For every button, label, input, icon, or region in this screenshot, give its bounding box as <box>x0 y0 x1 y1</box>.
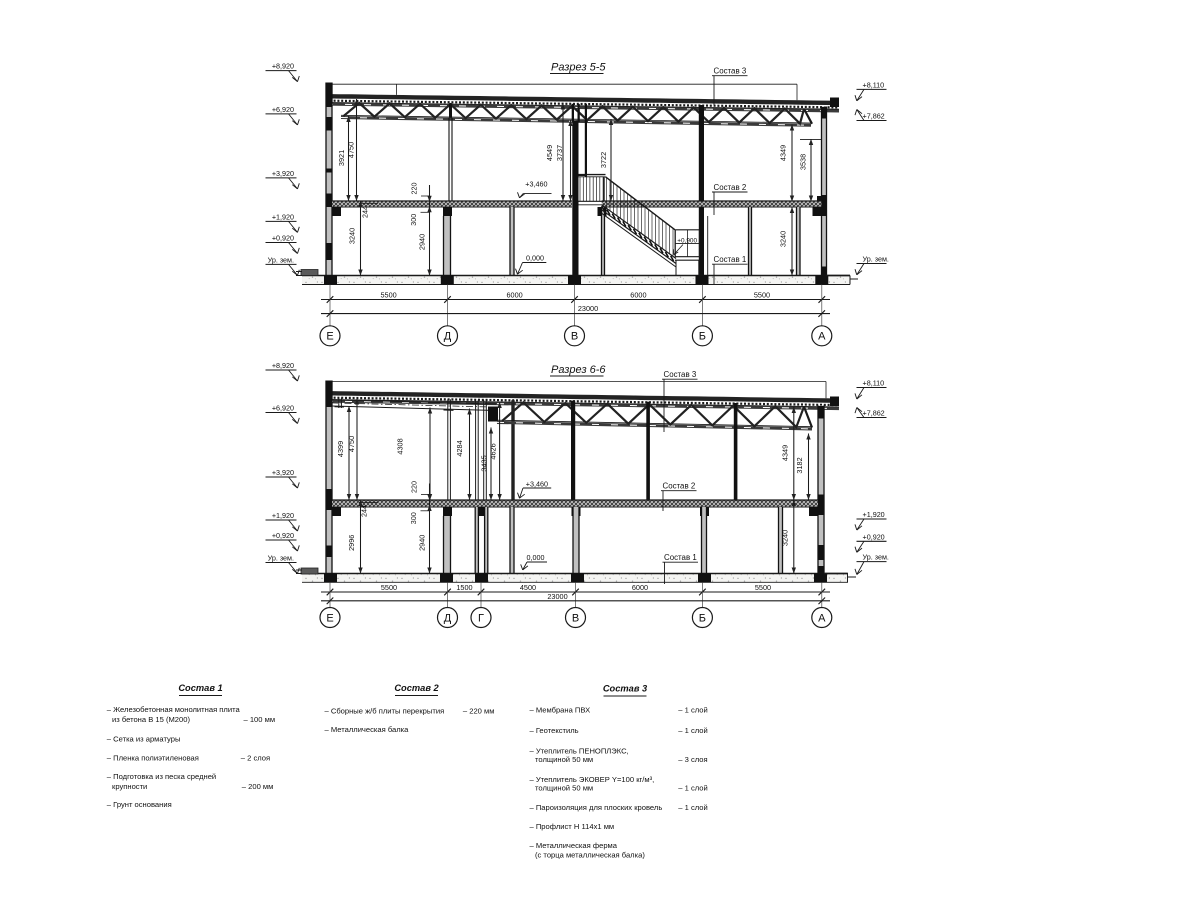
svg-text:Состав 2: Состав 2 <box>714 183 747 192</box>
svg-text:толщиной 50 мм: толщиной 50 мм <box>535 755 593 764</box>
svg-text:Ур. зем.: Ур. зем. <box>268 255 294 264</box>
svg-text:+8,110: +8,110 <box>863 80 885 89</box>
svg-text:4750: 4750 <box>347 436 356 452</box>
svg-text:В: В <box>572 612 579 624</box>
svg-text:3240: 3240 <box>780 530 789 546</box>
svg-text:+0,920: +0,920 <box>272 234 294 243</box>
svg-text:+1,920: +1,920 <box>863 510 885 519</box>
svg-text:3921: 3921 <box>337 150 346 166</box>
svg-text:4284: 4284 <box>455 440 464 456</box>
svg-text:+3,460: +3,460 <box>525 179 547 188</box>
svg-text:Ур. зем.: Ур. зем. <box>268 554 294 563</box>
svg-text:3737: 3737 <box>555 145 564 161</box>
svg-text:– 200 мм: – 200 мм <box>242 782 274 791</box>
svg-text:Разрез 5-5: Разрез 5-5 <box>551 62 606 74</box>
svg-text:– 1 слой: – 1 слой <box>678 706 707 715</box>
svg-text:толщиной 50 мм: толщиной 50 мм <box>535 783 593 792</box>
svg-text:1500: 1500 <box>456 583 472 592</box>
svg-text:+1,920: +1,920 <box>272 511 294 520</box>
svg-text:+3,920: +3,920 <box>272 169 294 178</box>
svg-text:+8,920: +8,920 <box>272 62 294 71</box>
svg-text:4349: 4349 <box>780 445 789 461</box>
svg-text:– 1 слой: – 1 слой <box>678 726 707 735</box>
svg-text:23000: 23000 <box>547 592 567 601</box>
svg-text:Разрез 6-6: Разрез 6-6 <box>551 364 606 376</box>
svg-text:– Геотекстиль: – Геотекстиль <box>530 726 579 735</box>
svg-text:4500: 4500 <box>520 583 536 592</box>
svg-text:крупности: крупности <box>112 782 147 791</box>
svg-text:А: А <box>818 612 826 624</box>
svg-text:– Пароизоляция для плоских кр: – Пароизоляция для плоских кровель <box>530 803 663 812</box>
svg-text:0,000: 0,000 <box>527 553 545 562</box>
svg-text:+8,110: +8,110 <box>863 379 885 388</box>
svg-text:6000: 6000 <box>632 583 648 592</box>
svg-text:– Пленка полиэтиленовая: – Пленка полиэтиленовая <box>107 754 199 763</box>
svg-text:+7,862: +7,862 <box>863 112 885 121</box>
svg-text:+8,920: +8,920 <box>272 361 294 370</box>
svg-text:3435: 3435 <box>480 455 489 471</box>
svg-text:– 2 слоя: – 2 слоя <box>241 754 270 763</box>
svg-text:+1,920: +1,920 <box>272 212 294 221</box>
svg-text:2940: 2940 <box>417 234 426 250</box>
svg-text:244: 244 <box>360 206 369 218</box>
svg-text:– Грунт основания: – Грунт основания <box>107 800 172 809</box>
svg-text:5500: 5500 <box>380 291 396 300</box>
svg-text:– Сетка из арматуры: – Сетка из арматуры <box>107 735 181 744</box>
svg-text:– 220 мм: – 220 мм <box>463 707 495 716</box>
svg-text:3240: 3240 <box>347 228 356 244</box>
svg-text:– Профлист Н 114х1 мм: – Профлист Н 114х1 мм <box>530 822 615 831</box>
svg-text:2940: 2940 <box>417 535 426 551</box>
svg-text:+3,920: +3,920 <box>272 468 294 477</box>
svg-text:300: 300 <box>409 512 418 524</box>
svg-text:– 3 слоя: – 3 слоя <box>678 755 707 764</box>
svg-text:Состав 3: Состав 3 <box>664 370 697 379</box>
svg-text:+3,460: +3,460 <box>526 480 548 489</box>
svg-text:Состав 1: Состав 1 <box>714 255 747 264</box>
svg-text:– 1 слой: – 1 слой <box>678 783 707 792</box>
svg-text:5500: 5500 <box>381 583 397 592</box>
svg-text:В: В <box>571 331 578 343</box>
svg-text:220: 220 <box>409 481 418 493</box>
svg-text:5500: 5500 <box>754 291 770 300</box>
svg-text:– Металлическая ферма: – Металлическая ферма <box>530 841 618 850</box>
svg-text:+6,920: +6,920 <box>272 404 294 413</box>
svg-text:Состав 1: Состав 1 <box>664 553 697 562</box>
svg-text:4549: 4549 <box>545 145 554 161</box>
svg-text:Е: Е <box>326 612 333 624</box>
svg-text:Е: Е <box>326 331 333 343</box>
svg-text:2996: 2996 <box>347 535 356 551</box>
svg-text:Состав 3: Состав 3 <box>603 684 648 694</box>
svg-text:Д: Д <box>444 331 452 343</box>
svg-text:А: А <box>818 331 826 343</box>
svg-text:Состав 1: Состав 1 <box>178 683 222 693</box>
svg-text:– Железобетонная монолитная: – Железобетонная монолитная плита <box>107 705 241 714</box>
svg-text:23000: 23000 <box>578 304 598 313</box>
svg-text:4349: 4349 <box>779 145 788 161</box>
svg-text:Д: Д <box>444 612 452 624</box>
svg-text:3182: 3182 <box>795 457 804 473</box>
svg-text:220: 220 <box>409 183 418 195</box>
svg-text:+6,920: +6,920 <box>272 105 294 114</box>
svg-text:– Металлическая балка: – Металлическая балка <box>325 725 410 734</box>
svg-text:6000: 6000 <box>630 291 646 300</box>
svg-text:3722: 3722 <box>599 152 608 168</box>
svg-text:4750: 4750 <box>346 142 355 158</box>
svg-text:244: 244 <box>359 505 368 517</box>
svg-text:+0,920: +0,920 <box>272 531 294 540</box>
svg-text:Состав 3: Состав 3 <box>714 67 747 76</box>
svg-text:– Подготовка из песка средней: – Подготовка из песка средней <box>107 772 216 781</box>
svg-text:6000: 6000 <box>506 291 522 300</box>
svg-text:4626: 4626 <box>488 443 497 459</box>
svg-text:Б: Б <box>699 331 706 343</box>
svg-text:3240: 3240 <box>779 231 788 247</box>
svg-text:4399: 4399 <box>336 441 345 457</box>
svg-text:4308: 4308 <box>395 438 404 454</box>
svg-text:из бетона В 15 (М200): из бетона В 15 (М200) <box>112 715 190 724</box>
svg-text:+7,862: +7,862 <box>863 409 885 418</box>
svg-text:– 1 слой: – 1 слой <box>678 803 707 812</box>
svg-text:(с торца металлическая балка): (с торца металлическая балка) <box>535 850 645 859</box>
svg-text:Состав 2: Состав 2 <box>663 482 696 491</box>
svg-text:– 100 мм: – 100 мм <box>244 715 276 724</box>
svg-text:Состав 2: Состав 2 <box>394 683 439 693</box>
svg-text:– Мембрана ПВХ: – Мембрана ПВХ <box>530 706 591 715</box>
svg-text:Б: Б <box>699 612 706 624</box>
svg-text:5500: 5500 <box>755 583 771 592</box>
svg-text:+0,920: +0,920 <box>863 532 885 541</box>
svg-text:– Сборные ж/б плиты перекрыти: – Сборные ж/б плиты перекрытия <box>325 707 445 716</box>
svg-text:3538: 3538 <box>798 154 807 170</box>
svg-text:0,000: 0,000 <box>526 254 544 263</box>
svg-text:Ур. зем.: Ур. зем. <box>863 553 889 562</box>
svg-text:Ур. зем.: Ур. зем. <box>863 255 889 264</box>
svg-text:Г: Г <box>478 612 484 624</box>
svg-text:+0,900: +0,900 <box>677 237 697 244</box>
svg-text:300: 300 <box>409 214 418 226</box>
